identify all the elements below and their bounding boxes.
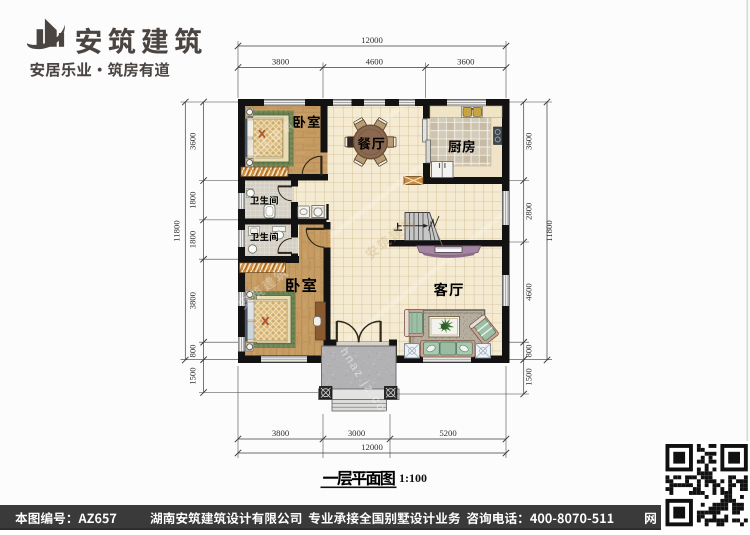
svg-text:1500: 1500 xyxy=(523,368,533,386)
svg-text:2800: 2800 xyxy=(523,202,533,220)
svg-text:1800: 1800 xyxy=(188,191,198,209)
svg-text:800: 800 xyxy=(188,344,198,358)
svg-text:3800: 3800 xyxy=(188,291,198,309)
svg-text:1:100: 1:100 xyxy=(399,471,427,485)
svg-text:12000: 12000 xyxy=(361,35,383,45)
svg-text:3600: 3600 xyxy=(457,57,475,67)
svg-text:3600: 3600 xyxy=(523,132,533,150)
svg-text:11800: 11800 xyxy=(172,220,182,242)
svg-text:3000: 3000 xyxy=(348,428,366,438)
svg-text:12000: 12000 xyxy=(361,442,383,452)
svg-text:4600: 4600 xyxy=(366,57,384,67)
svg-text:5200: 5200 xyxy=(439,428,457,438)
svg-text:800: 800 xyxy=(523,344,533,358)
svg-text:1500: 1500 xyxy=(188,367,198,385)
svg-text:3800: 3800 xyxy=(272,428,290,438)
svg-text:3800: 3800 xyxy=(272,57,290,67)
svg-text:4600: 4600 xyxy=(523,283,533,301)
svg-text:3600: 3600 xyxy=(188,132,198,150)
svg-text:11800: 11800 xyxy=(544,220,554,242)
svg-text:1800: 1800 xyxy=(188,230,198,248)
